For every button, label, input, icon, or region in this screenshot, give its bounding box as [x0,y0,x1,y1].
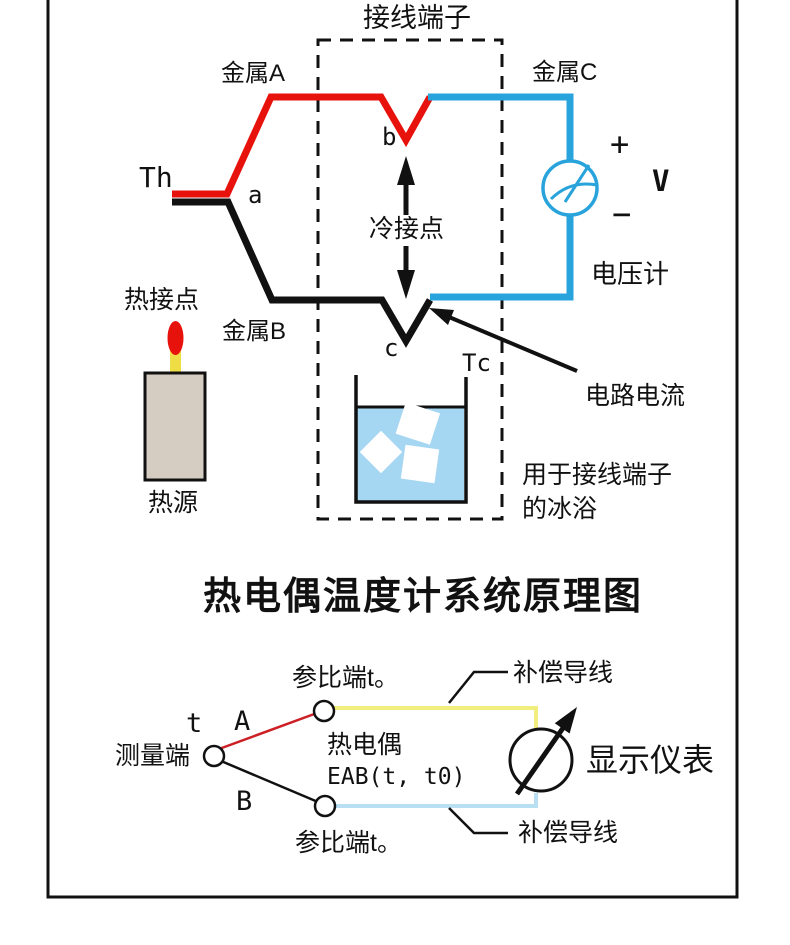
measuring-end-label: 测量端 [115,743,190,769]
ref-junction-bottom-label: 参比端t。 [295,830,402,856]
circuit-current-label: 电路电流 [585,383,685,409]
heat-source-body [145,373,205,480]
display-meter-label: 显示仪表 [586,744,714,778]
leader-line-bottom [449,808,508,833]
reference-junction-bottom-circle [315,796,335,816]
metal-a-label: 金属A [221,61,285,86]
flame-icon [168,321,184,355]
current-arrowhead [429,308,454,325]
terminal-block-label: 接线端子 [363,4,471,32]
thermocouple-label: 热电偶 [327,732,402,758]
ice-bath-caption-line1: 用于接线端子 [522,462,672,488]
display-meter-icon [510,707,577,794]
junction-a-label: a [248,183,262,208]
junction-b-label: b [382,125,396,150]
reference-junction-top-circle [314,701,334,721]
circuit-current-arrow [429,308,577,371]
heat-source-candle [145,321,205,480]
leader-line-top [449,672,508,703]
measuring-junction-circle [204,746,224,766]
arrowhead-down [397,270,415,299]
wire-b-label: B [236,788,252,816]
volt-unit-label: V [652,166,669,196]
ice-bath [356,375,466,502]
wire-a-label: A [234,708,250,736]
metal-b-label: 金属B [222,319,286,344]
cold-temp-label: Tc [462,351,491,376]
voltmeter-icon [543,161,597,215]
hot-junction-label: 热接点 [124,287,199,313]
comp-wire-top-label: 补偿导线 [513,660,613,686]
ref-junction-top-label: 参比端t。 [292,665,399,691]
heat-source-label: 热源 [148,490,198,516]
junction-c-label: c [384,336,398,361]
ice-bath-caption-line2: 的冰浴 [522,496,597,522]
arrowhead-up [397,156,415,185]
compensation-wire-bottom [335,793,536,806]
meter-needle-arrowhead [555,707,577,734]
comp-wire-bottom-label: 补偿导线 [518,820,618,846]
thermocouple-schematic-page: 接线端子 金属A 金属C Th a b 冷接点 热接点 金属B 热源 c Tc … [0,0,790,945]
cold-junction-label: 冷接点 [369,216,444,242]
metal-c-label: 金属C [532,60,597,85]
voltmeter-label: 电压计 [591,261,669,288]
hot-temp-label: Th [139,163,173,192]
page-title: 热电偶温度计系统原理图 [203,578,643,618]
minus-sign: − [612,198,631,232]
temp-t-label: t [186,710,202,738]
compensation-wire-top [334,708,536,728]
emf-label: EAB(t, t0) [327,765,465,789]
plus-sign: + [610,128,629,162]
ice-cube-3 [401,445,439,483]
